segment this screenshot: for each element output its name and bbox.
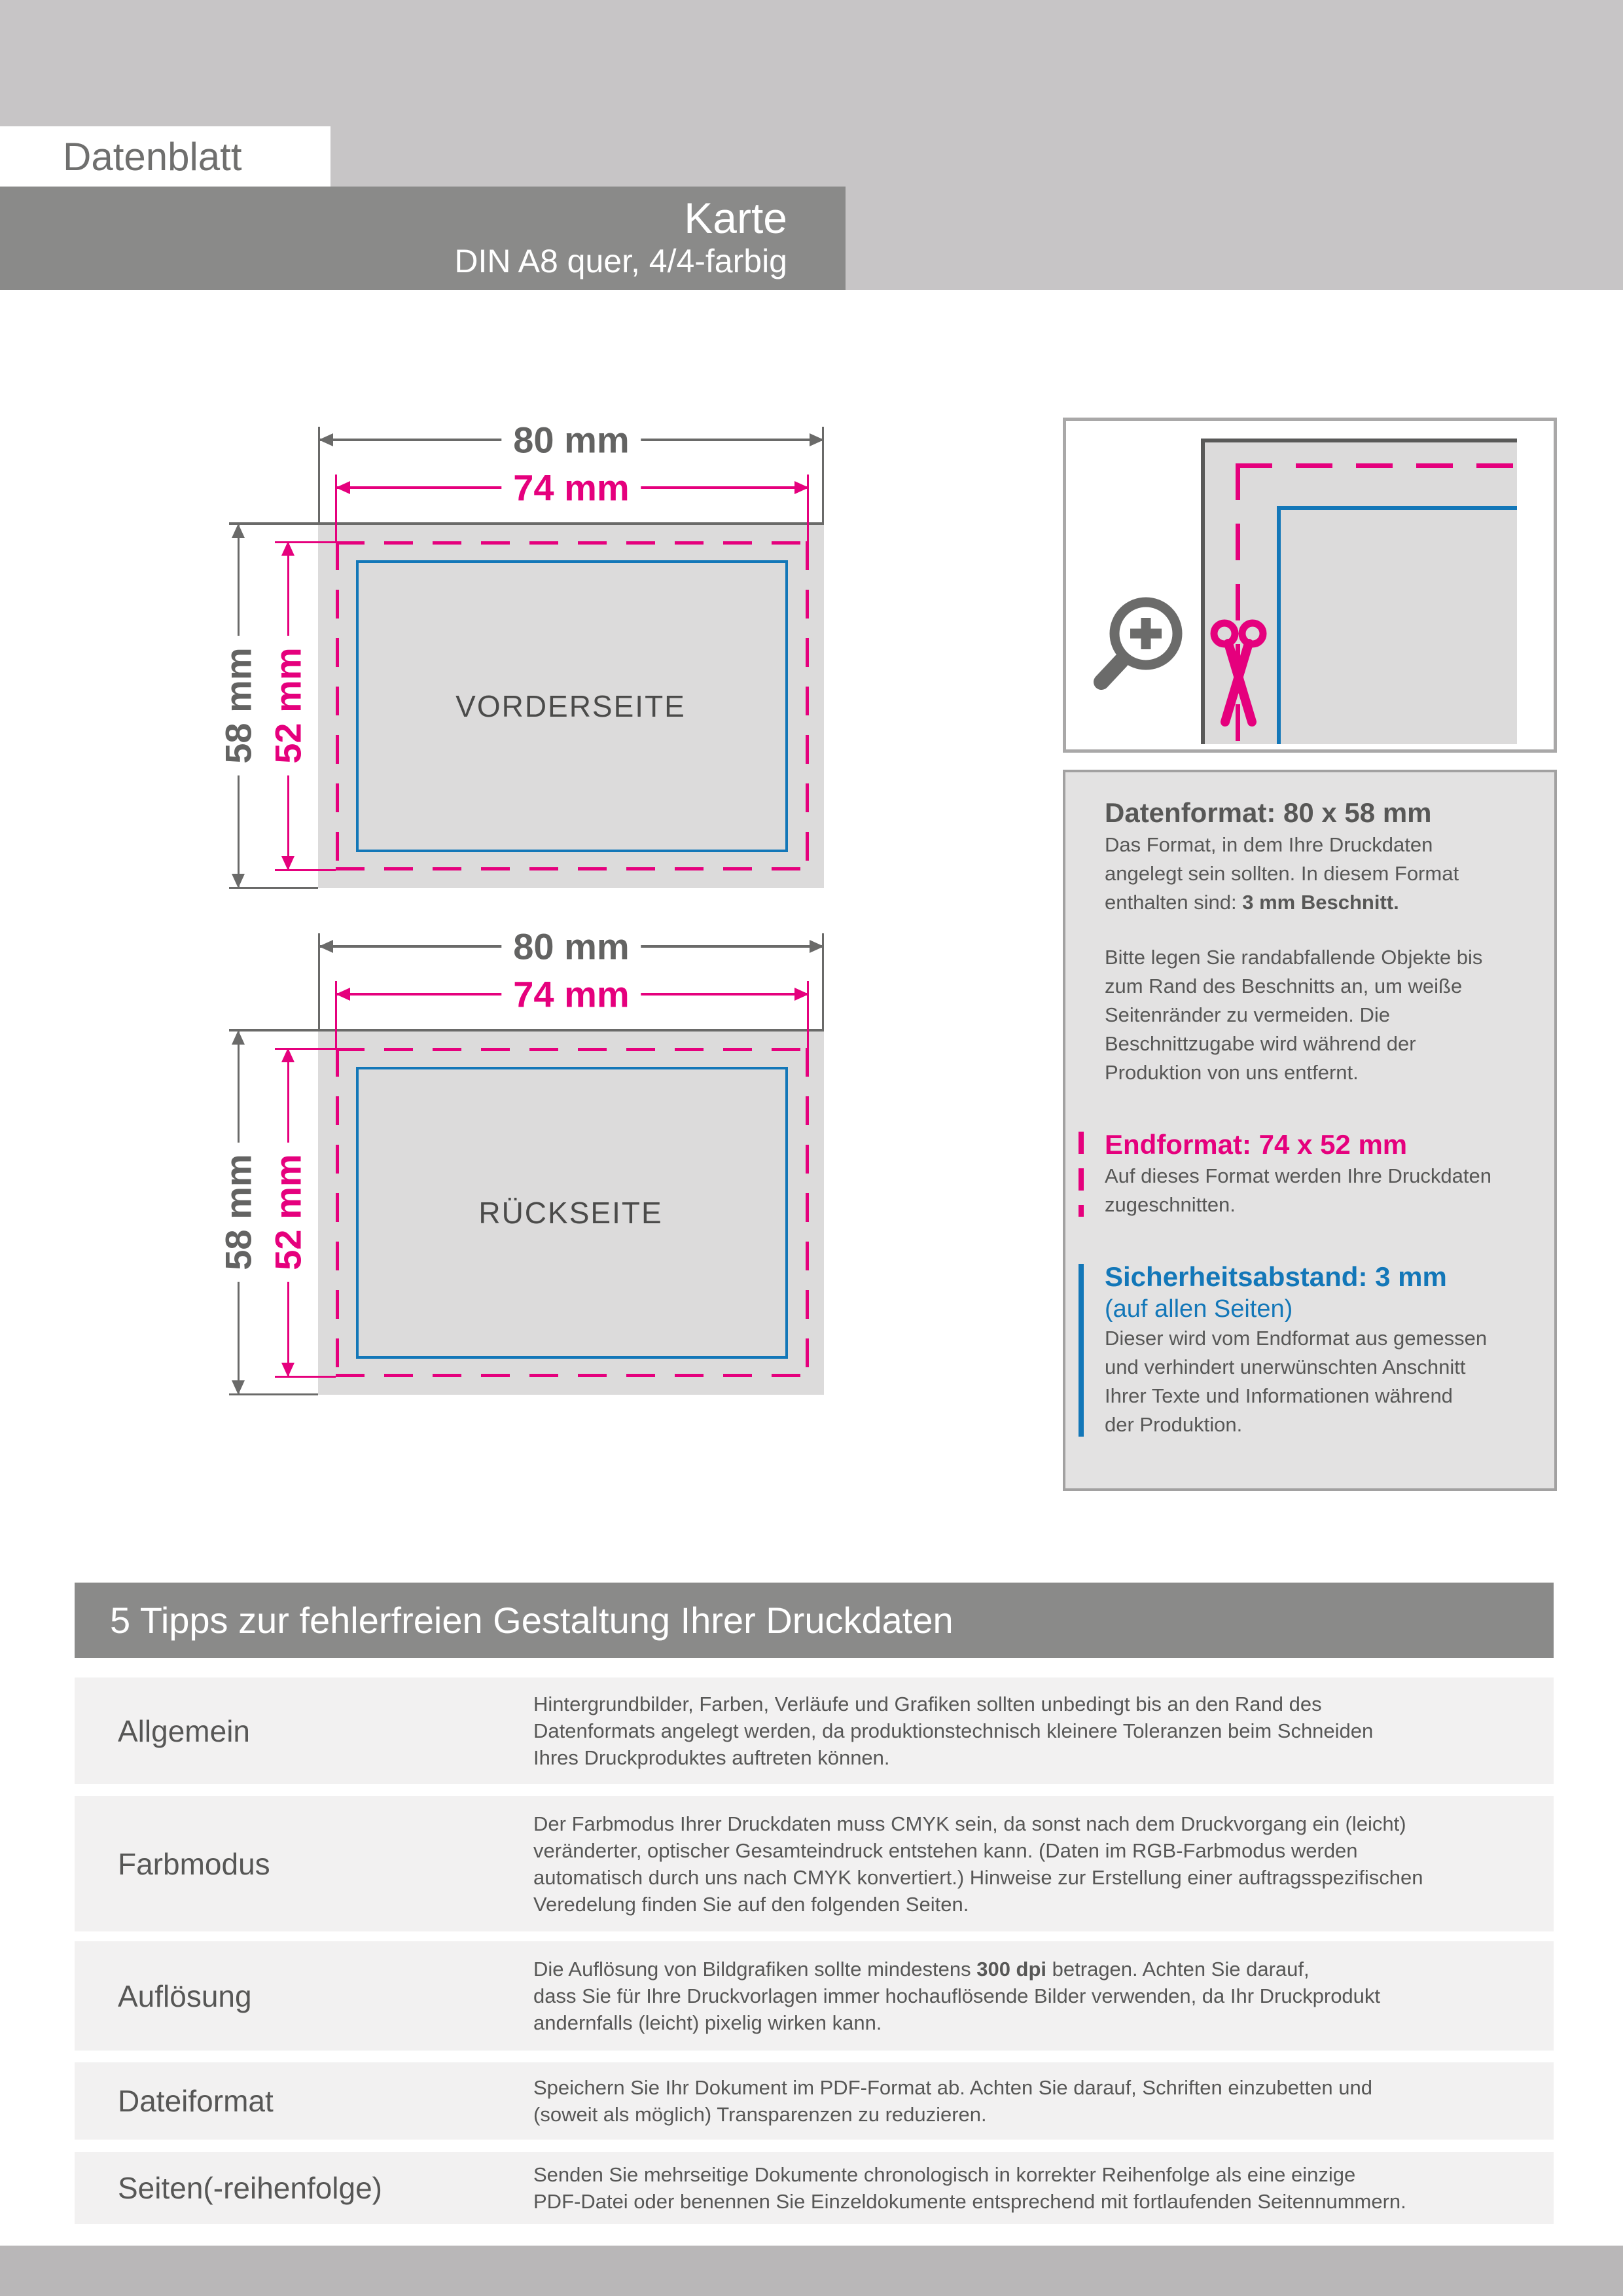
sicherheitsabstand-body: Dieser wird vom Endformat aus gemessen u… — [1105, 1324, 1541, 1439]
table-row: Allgemein Hintergrundbilder, Farben, Ver… — [75, 1677, 1554, 1784]
title-banner: Karte DIN A8 quer, 4/4-farbig — [0, 187, 846, 290]
row-text: Die Auflösung von Bildgrafiken sollte mi… — [533, 1956, 1554, 2036]
arrowhead-icon — [810, 940, 824, 953]
info-panel: Datenformat: 80 x 58 mm Das Format, in d… — [1063, 770, 1557, 1491]
back-diagram: RÜCKSEITE 80 mm 74 mm 58 mm 52 mm — [196, 912, 870, 1423]
datenformat-section: Datenformat: 80 x 58 mm Das Format, in d… — [1105, 796, 1541, 1087]
arrowhead-icon — [810, 433, 824, 446]
tips-banner: 5 Tipps zur fehlerfreien Gestaltung Ihre… — [75, 1583, 1554, 1658]
scissors-icon — [1205, 617, 1272, 732]
dimension-label-outer-height: 58 mm — [216, 636, 261, 775]
arrowhead-icon — [281, 541, 294, 556]
dimension-label-inner-height: 52 mm — [266, 636, 311, 775]
arrowhead-icon — [794, 988, 809, 1001]
table-row: Auflösung Die Auflösung von Bildgrafiken… — [75, 1941, 1554, 2051]
arrowhead-icon — [232, 524, 245, 538]
arrowhead-icon — [232, 1030, 245, 1045]
cut-line-detail — [1236, 463, 1517, 468]
side-label: RÜCKSEITE — [478, 1195, 662, 1230]
row-text: Hintergrundbilder, Farben, Verläufe und … — [533, 1691, 1554, 1771]
arrowhead-icon — [281, 1363, 294, 1377]
arrowhead-icon — [336, 988, 350, 1001]
dimension-label-outer-height: 58 mm — [216, 1142, 261, 1282]
table-row: Seiten(-reihenfolge) Senden Sie mehrseit… — [75, 2152, 1554, 2224]
table-row: Farbmodus Der Farbmodus Ihrer Druckdaten… — [75, 1796, 1554, 1931]
front-diagram: VORDERSEITE 80 mm 74 mm 58 mm 52 mm — [196, 406, 870, 916]
dimension-label-inner-width: 74 mm — [501, 465, 641, 511]
card-edge-line — [1201, 439, 1517, 442]
row-label: Farbmodus — [75, 1846, 533, 1882]
dimension-label-inner-height: 52 mm — [266, 1142, 311, 1282]
eyebrow-box: Datenblatt — [0, 126, 330, 187]
datenformat-body: Das Format, in dem Ihre Druckdaten angel… — [1105, 831, 1541, 917]
zoom-in-icon — [1092, 588, 1204, 719]
arrowhead-icon — [319, 940, 333, 953]
row-label: Dateiformat — [75, 2083, 533, 2119]
arrowhead-icon — [336, 481, 350, 494]
dimension-label-outer-width: 80 mm — [501, 924, 641, 969]
tips-heading: 5 Tipps zur fehlerfreien Gestaltung Ihre… — [75, 1599, 954, 1641]
page-title: Datenblatt — [0, 134, 242, 179]
arrowhead-icon — [794, 481, 809, 494]
sicherheitsabstand-heading: Sicherheitsabstand: 3 mm — [1105, 1260, 1541, 1295]
datenformat-heading: Datenformat: 80 x 58 mm — [1105, 796, 1541, 831]
safety-line-detail — [1277, 506, 1517, 510]
arrowhead-icon — [232, 1380, 245, 1395]
datasheet-page: Datenblatt Karte DIN A8 quer, 4/4-farbig… — [0, 0, 1623, 2296]
side-label: VORDERSEITE — [455, 689, 686, 724]
arrowhead-icon — [281, 856, 294, 870]
arrowhead-icon — [281, 1048, 294, 1062]
sicherheitsabstand-subheading: (auf allen Seiten) — [1105, 1295, 1541, 1325]
row-label: Allgemein — [75, 1713, 533, 1749]
product-subtitle: DIN A8 quer, 4/4-farbig — [454, 242, 787, 281]
row-label: Auflösung — [75, 1979, 533, 2014]
table-row: Dateiformat Speichern Sie Ihr Dokument i… — [75, 2062, 1554, 2140]
dimension-label-outer-width: 80 mm — [501, 418, 641, 463]
endformat-section: Endformat: 74 x 52 mm Auf dieses Format … — [1105, 1128, 1541, 1220]
detail-illustration — [1063, 418, 1557, 753]
product-title: Karte — [684, 196, 787, 241]
arrowhead-icon — [232, 874, 245, 888]
footer-band — [0, 2246, 1623, 2296]
sicherheitsabstand-section: Sicherheitsabstand: 3 mm (auf allen Seit… — [1105, 1260, 1541, 1439]
row-text: Senden Sie mehrseitige Dokumente chronol… — [533, 2161, 1554, 2215]
endformat-heading: Endformat: 74 x 52 mm — [1105, 1128, 1541, 1162]
datenformat-body2: Bitte legen Sie randabfallende Objekte b… — [1105, 943, 1541, 1087]
dimension-label-inner-width: 74 mm — [501, 972, 641, 1017]
row-label: Seiten(-reihenfolge) — [75, 2170, 533, 2206]
endformat-body: Auf dieses Format werden Ihre Druckdaten… — [1105, 1162, 1541, 1219]
row-text: Speichern Sie Ihr Dokument im PDF-Format… — [533, 2074, 1554, 2128]
arrowhead-icon — [319, 433, 333, 446]
row-text: Der Farbmodus Ihrer Druckdaten muss CMYK… — [533, 1810, 1554, 1918]
safety-line-detail — [1277, 506, 1281, 744]
